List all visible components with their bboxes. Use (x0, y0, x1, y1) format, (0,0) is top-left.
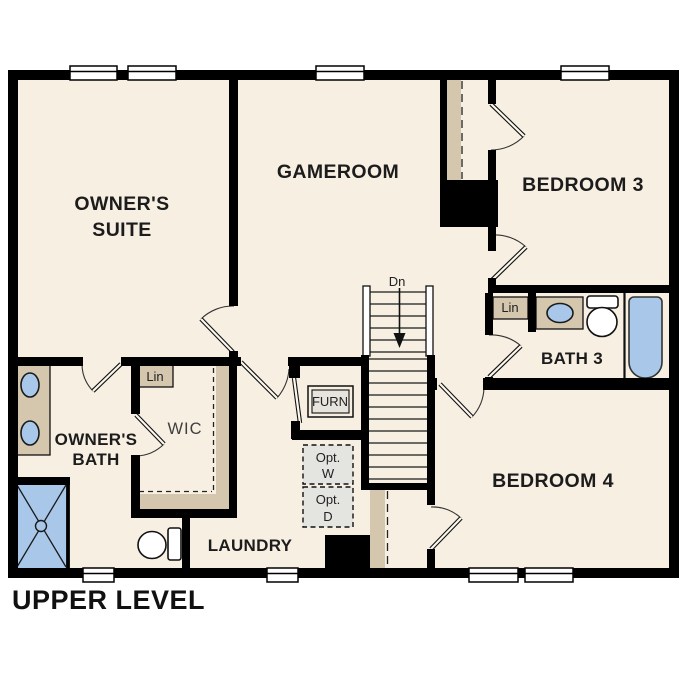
window (70, 66, 117, 80)
owners-sink-2 (21, 421, 39, 445)
understair-chase (370, 490, 385, 570)
opt-dryer-label-line2: D (323, 509, 332, 524)
window (561, 66, 609, 80)
owners-bath-label-line1: OWNER'S (55, 430, 138, 449)
bath3-linen-label: Lin (501, 300, 518, 315)
bath3-label: BATH 3 (541, 349, 603, 368)
bath3-toilet-tank (587, 296, 618, 308)
furnace-label: FURN (312, 394, 348, 409)
owners-toilet-bowl (138, 532, 166, 559)
wic-linen-label: Lin (146, 369, 163, 384)
bedroom3-label: BEDROOM 3 (522, 174, 644, 196)
stairs-down-label: Dn (389, 274, 406, 289)
stair-railing-right (426, 286, 433, 356)
floorplan-drawing: OWNER'S SUITE GAMEROOM BEDROOM 3 BATH 3 … (0, 0, 687, 687)
window (316, 66, 364, 80)
gameroom-label: GAMEROOM (277, 161, 399, 183)
owners-suite-label-line1: OWNER'S (74, 193, 169, 215)
owners-sink-1 (21, 373, 39, 397)
bedroom4-label: BEDROOM 4 (492, 470, 614, 492)
window (525, 568, 573, 582)
owners-suite-label-line2: SUITE (92, 219, 151, 241)
bath3-tub (629, 297, 662, 378)
opt-washer-label-line2: W (322, 466, 335, 481)
opt-dryer-label-line1: Opt. (316, 492, 341, 507)
bath3-toilet-bowl (587, 308, 617, 337)
shower-drain (36, 521, 47, 532)
plan-title: UPPER LEVEL (12, 585, 205, 615)
window (469, 568, 518, 582)
opt-washer-label-line1: Opt. (316, 450, 341, 465)
wic-label: WIC (167, 420, 202, 438)
owners-toilet-tank (168, 528, 181, 560)
window (267, 568, 298, 582)
floorplan-page: OWNER'S SUITE GAMEROOM BEDROOM 3 BATH 3 … (0, 0, 687, 687)
owners-bath-label-line2: BATH (72, 450, 119, 469)
window (128, 66, 176, 80)
window (83, 568, 114, 582)
chase-shaft (447, 79, 461, 180)
wic-shelf-bottom (137, 494, 233, 509)
bath3-sink (547, 304, 573, 323)
laundry-label: LAUNDRY (208, 536, 293, 555)
stair-railing-left (363, 286, 370, 356)
